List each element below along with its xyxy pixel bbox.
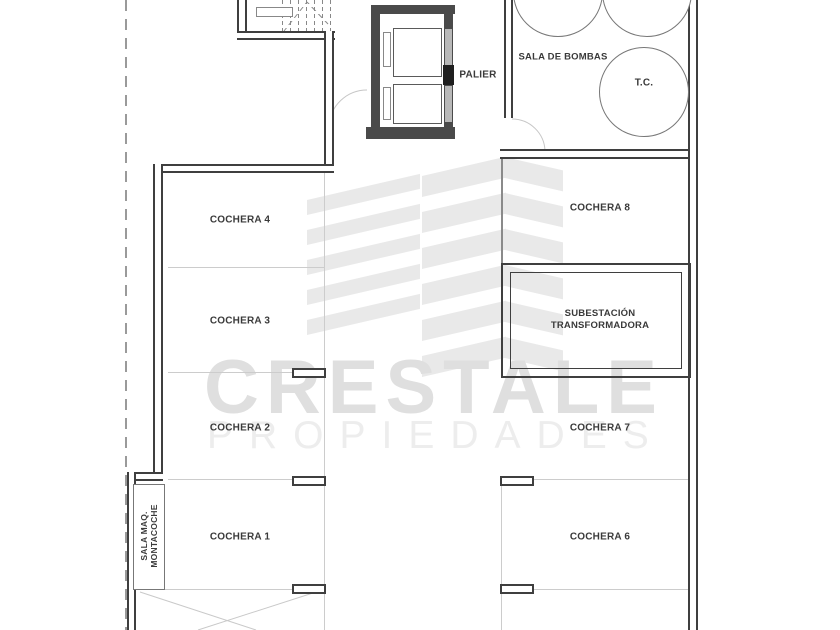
- room-label-cochera-6: COCHERA 6: [570, 532, 630, 543]
- elevator-guide-rail: [383, 32, 391, 67]
- tank-label: T.C.: [638, 0, 657, 1]
- room-label-substation-line2: TRANSFORMADORA: [551, 320, 649, 332]
- wall-garage-top: [153, 164, 334, 173]
- room-label-montacoche-line1: SALA MAQ.: [139, 504, 149, 567]
- room-label-substation: SUBESTACIÓN TRANSFORMADORA: [551, 308, 649, 332]
- parking-column: [292, 476, 326, 486]
- tank-label: T.C.: [635, 78, 654, 89]
- room-label-pump-room: SALA DE BOMBAS: [518, 52, 607, 63]
- ramp-cross-line: [140, 592, 256, 630]
- elevator-shaft-top-wall: [371, 5, 455, 14]
- parking-column: [292, 584, 326, 594]
- wall-pump-room-left: [504, 0, 513, 118]
- elevator-shaft-left-wall: [371, 5, 380, 139]
- room-label-cochera-8: COCHERA 8: [570, 203, 630, 214]
- wall-pump-room-bottom: [500, 149, 690, 159]
- room-label-cochera-2: COCHERA 2: [210, 423, 270, 434]
- wall-garage-left: [153, 164, 163, 481]
- parking-column: [500, 476, 534, 486]
- elevator-car: [393, 28, 442, 77]
- tank-label: T.C.: [549, 0, 568, 1]
- wall-palier-left: [324, 31, 334, 173]
- floor-plan: CRESTALE PROPIEDADES: [0, 0, 840, 630]
- room-label-cochera-7: COCHERA 7: [570, 423, 630, 434]
- room-label-montacoche: SALA MAQ. MONTACOCHE: [139, 504, 159, 567]
- room-label-cochera-4: COCHERA 4: [210, 215, 270, 226]
- elevator-door-jamb: [443, 65, 454, 85]
- parking-column: [500, 584, 534, 594]
- room-label-substation-line1: SUBESTACIÓN: [551, 308, 649, 320]
- door-swing-arc: [329, 90, 367, 126]
- door-swing-arc: [512, 119, 545, 151]
- room-label-cochera-3: COCHERA 3: [210, 316, 270, 327]
- elevator-door-panel: [445, 29, 452, 65]
- stair-landing: [256, 7, 293, 17]
- elevator-car: [393, 84, 442, 124]
- elevator-guide-rail: [383, 87, 391, 120]
- room-label-cochera-1: COCHERA 1: [210, 532, 270, 543]
- tank-circle: [599, 47, 689, 137]
- room-label-montacoche-line2: MONTACOCHE: [149, 504, 159, 567]
- ramp-cross-line: [198, 592, 316, 630]
- elevator-door-panel: [445, 86, 452, 122]
- room-label-palier: PALIER: [459, 70, 496, 81]
- wall-stair-bottom: [237, 31, 335, 40]
- parking-column: [292, 368, 326, 378]
- elevator-shaft-bottom-wall: [366, 127, 455, 139]
